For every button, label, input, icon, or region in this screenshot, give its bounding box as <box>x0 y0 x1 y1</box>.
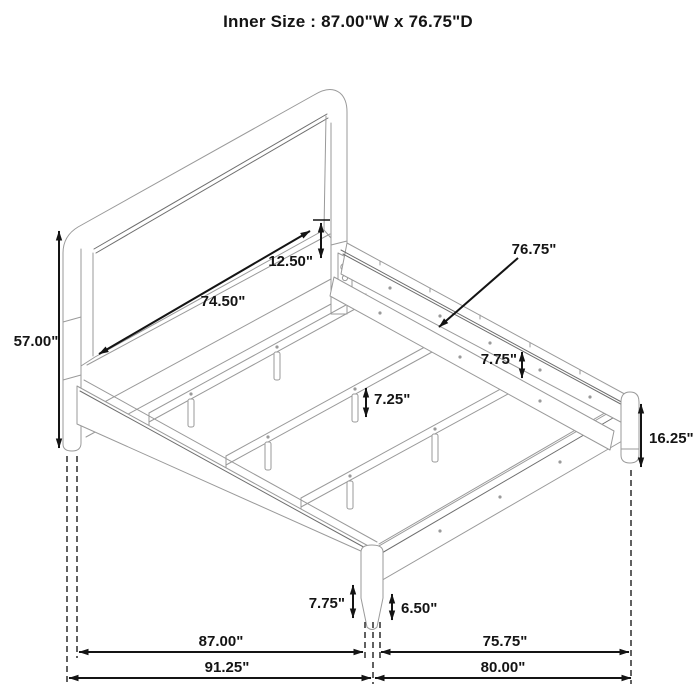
support-leg <box>265 442 271 470</box>
dim-label-panel-offset: 12.50" <box>268 253 313 270</box>
dim-label-headboard-height: 57.00" <box>14 333 59 350</box>
screw-hole <box>438 314 441 317</box>
dim-label-overall-width: 91.25" <box>205 659 250 676</box>
screw-hole <box>348 474 351 477</box>
screw-hole <box>538 399 541 402</box>
screw-hole <box>275 345 278 348</box>
diagram-title: Inner Size : 87.00"W x 76.75"D <box>223 12 473 31</box>
support-leg <box>352 394 358 422</box>
dim-label-slat-rail-length: 76.75" <box>512 241 557 258</box>
screw-hole <box>438 529 441 532</box>
screw-hole <box>498 495 501 498</box>
dim-label-panel-width: 74.50" <box>201 293 246 310</box>
screw-hole <box>558 460 561 463</box>
footboard-corner-post <box>621 392 639 463</box>
right-side-rail <box>330 243 632 450</box>
dim-label-front-leg-lower: 6.50" <box>401 600 437 617</box>
support-leg <box>347 481 353 509</box>
headboard <box>63 89 352 451</box>
screw-hole <box>588 395 591 398</box>
right-rail-cleat <box>330 277 614 450</box>
screw-hole <box>266 435 269 438</box>
bed-frame-dimension-diagram: Inner Size : 87.00"W x 76.75"D <box>0 0 700 700</box>
left-rail-top-band <box>84 380 377 542</box>
diagram-canvas: Inner Size : 87.00"W x 76.75"D <box>0 0 700 700</box>
right-rail-top-band-2 <box>343 254 628 408</box>
cross-rail-a-top <box>149 294 366 413</box>
foot-rail-top-band <box>379 396 634 544</box>
dim-label-inner-depth: 75.75" <box>483 633 528 650</box>
support-leg <box>432 434 438 462</box>
dim-label-side-rail-height: 7.75" <box>481 351 517 368</box>
dim-label-front-leg-height: 7.75" <box>309 595 345 612</box>
screw-hole <box>189 392 192 395</box>
dim-label-corner-height: 16.25" <box>649 430 694 447</box>
screw-hole <box>488 341 491 344</box>
cross-rail-b-ends <box>226 337 443 468</box>
support-leg <box>188 399 194 427</box>
right-rail-top-band <box>341 250 627 405</box>
screw-hole <box>538 368 541 371</box>
screw-hole <box>353 387 356 390</box>
cross-rail-a-bottom <box>149 303 366 422</box>
screw-hole <box>433 427 436 430</box>
support-leg <box>274 352 280 380</box>
front-left-leg <box>361 545 383 630</box>
dim-label-center-leg-height: 7.25" <box>374 391 410 408</box>
left-rail-pinstripe <box>80 391 369 550</box>
screw-hole <box>378 311 381 314</box>
dim-label-overall-depth: 80.00" <box>481 659 526 676</box>
screw-hole <box>388 286 391 289</box>
headboard-outline <box>63 89 347 451</box>
dim-label-inner-width: 87.00" <box>199 633 244 650</box>
screw-hole <box>458 355 461 358</box>
